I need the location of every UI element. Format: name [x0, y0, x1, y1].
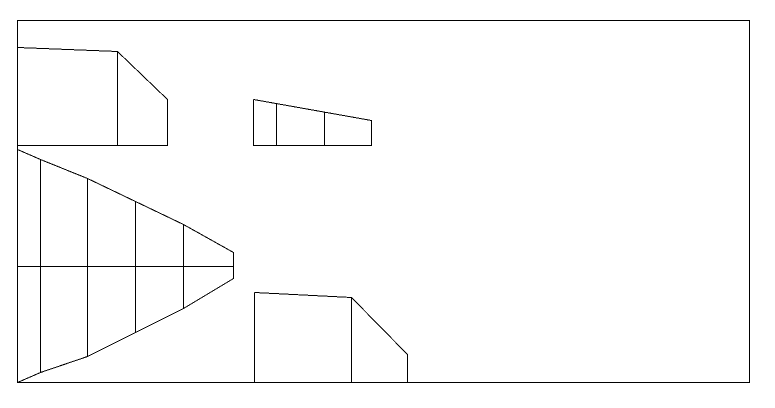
upper-middle-tapered-panel	[254, 100, 372, 146]
lower-middle-chamfered-panel	[255, 293, 408, 383]
upper-left-chamfered-panel-line	[18, 48, 168, 146]
drawing-border	[18, 21, 750, 383]
drawing-canvas[interactable]	[0, 0, 775, 408]
lower-middle-chamfered-panel-line	[255, 293, 408, 383]
upper-left-chamfered-panel	[18, 48, 168, 146]
pointed-plan-outline	[18, 150, 234, 383]
upper-middle-tapered-panel-line	[254, 100, 372, 146]
drawing-svg	[0, 0, 775, 408]
